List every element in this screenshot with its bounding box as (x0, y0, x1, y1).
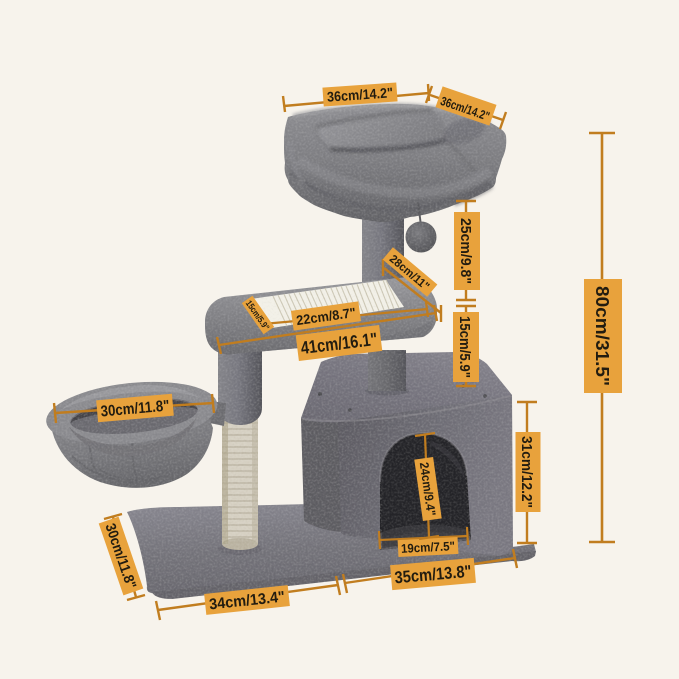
svg-text:31cm/12.2": 31cm/12.2" (518, 436, 534, 508)
svg-text:25cm/9.8": 25cm/9.8" (457, 218, 474, 284)
svg-text:15cm/5.9": 15cm/5.9" (456, 316, 473, 378)
svg-text:80cm/31.5": 80cm/31.5" (592, 286, 612, 386)
svg-text:19cm/7.5": 19cm/7.5" (401, 539, 456, 556)
